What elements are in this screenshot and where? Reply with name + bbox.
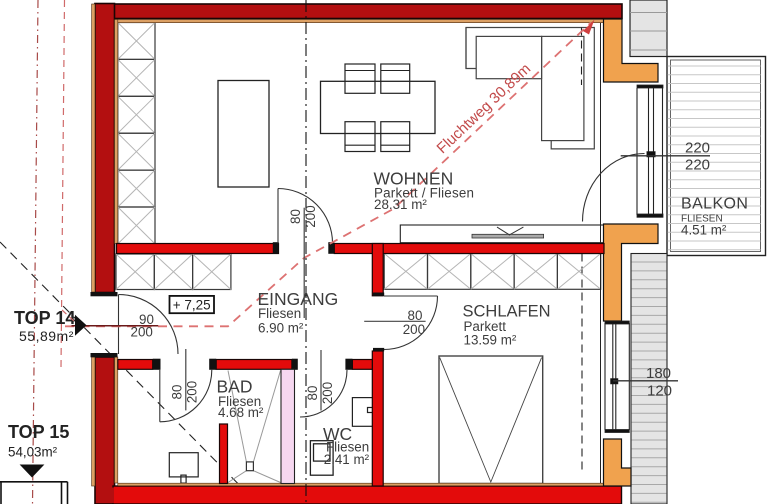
svg-text:4.51 m²: 4.51 m²	[681, 223, 727, 238]
svg-text:200: 200	[320, 382, 335, 404]
svg-text:55,89m²: 55,89m²	[19, 328, 74, 344]
svg-text:80: 80	[305, 386, 320, 401]
svg-text:200: 200	[403, 322, 425, 337]
svg-text:28.31 m²: 28.31 m²	[374, 197, 427, 212]
svg-text:2,41 m²: 2,41 m²	[324, 452, 370, 467]
svg-text:SCHLAFEN: SCHLAFEN	[463, 303, 551, 321]
svg-text:180: 180	[646, 365, 671, 382]
svg-text:BALKON: BALKON	[681, 196, 748, 213]
svg-text:Fliesen: Fliesen	[258, 306, 301, 321]
svg-text:220: 220	[685, 157, 710, 174]
svg-text:+ 7,25: + 7,25	[173, 298, 211, 313]
svg-text:80: 80	[170, 385, 185, 400]
svg-text:120: 120	[647, 383, 672, 400]
svg-text:54,03m²: 54,03m²	[8, 445, 58, 460]
svg-text:200: 200	[303, 205, 318, 227]
svg-text:80: 80	[408, 308, 423, 323]
svg-text:200: 200	[131, 325, 153, 340]
svg-text:200: 200	[185, 381, 200, 403]
svg-text:80: 80	[288, 209, 303, 224]
svg-text:13.59 m²: 13.59 m²	[464, 333, 517, 348]
svg-text:4.68 m²: 4.68 m²	[218, 405, 264, 420]
svg-text:6.90 m²: 6.90 m²	[258, 321, 304, 336]
svg-text:220: 220	[685, 140, 710, 157]
svg-text:TOP 14: TOP 14	[14, 308, 75, 328]
svg-text:TOP 15: TOP 15	[8, 422, 69, 442]
